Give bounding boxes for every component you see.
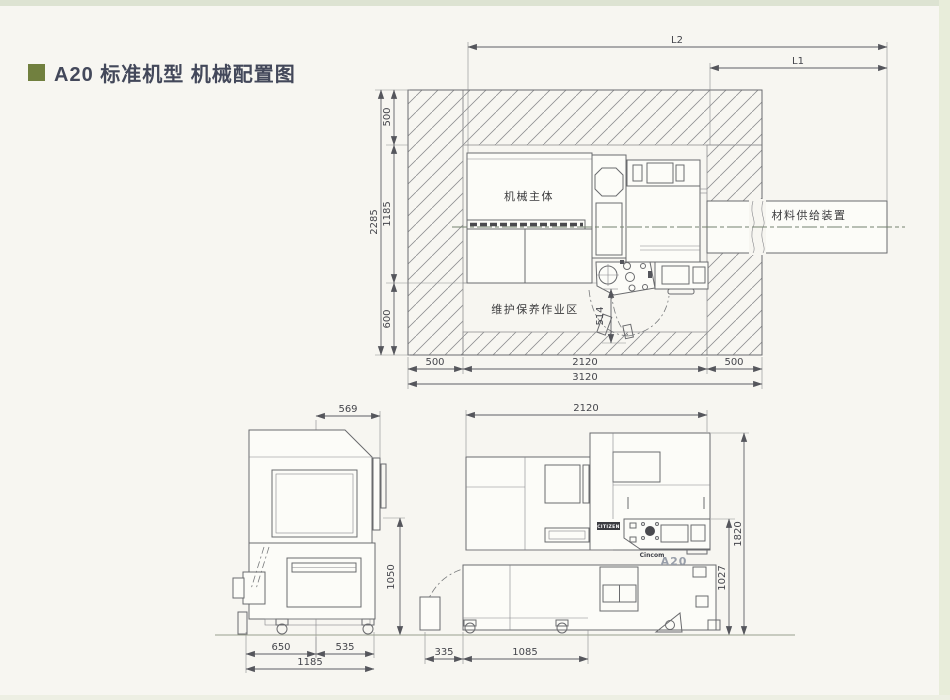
side-machine-outline (233, 430, 386, 634)
logo-model: A20 (661, 555, 688, 568)
dim-left-extension: 335 (434, 647, 453, 658)
dim-body-depth: 1185 (382, 201, 393, 226)
dim-total-width: 3120 (572, 372, 597, 383)
brand-plate-label: CITIZEN (597, 524, 620, 530)
plan-view: L2 L1 2285 500 1185 600 514 500 (369, 35, 905, 389)
dim-total-height: 1820 (733, 521, 744, 546)
label-machine-body: 机械主体 (504, 189, 554, 203)
dim-l1: L1 (792, 56, 804, 67)
dim-cover-height: 1027 (717, 565, 728, 590)
dim-front-span: 650 (271, 642, 290, 653)
dim-rear-span: 535 (335, 642, 354, 653)
front-view: CITIZEN Cincom A20 2120 1820 1027 335 10… (420, 403, 749, 664)
dim-total-depth: 2285 (369, 209, 380, 234)
dim-height: 1050 (386, 564, 397, 589)
dim-spindle-offset: 569 (338, 404, 357, 415)
dim-body-width: 2120 (572, 357, 597, 368)
dim-l2: L2 (671, 35, 683, 46)
side-view: 569 1050 650 535 1185 (233, 404, 405, 673)
dim-front-width: 2120 (573, 403, 598, 414)
dim-top-clearance: 500 (382, 107, 393, 126)
dim-right-clearance: 500 (724, 357, 743, 368)
plan-operator-panel (589, 260, 708, 339)
machine-layout-drawing: L2 L1 2285 500 1185 600 514 500 (0, 0, 950, 700)
dim-door-opening: 514 (595, 306, 606, 325)
label-maintenance-area: 维护保养作业区 (491, 302, 579, 316)
dim-total-length: 1185 (297, 657, 322, 668)
dim-base-length: 1085 (512, 647, 537, 658)
dim-front-clearance: 600 (382, 309, 393, 328)
dim-left-clearance: 500 (425, 357, 444, 368)
label-material-supply: 材料供给装置 (772, 208, 847, 222)
